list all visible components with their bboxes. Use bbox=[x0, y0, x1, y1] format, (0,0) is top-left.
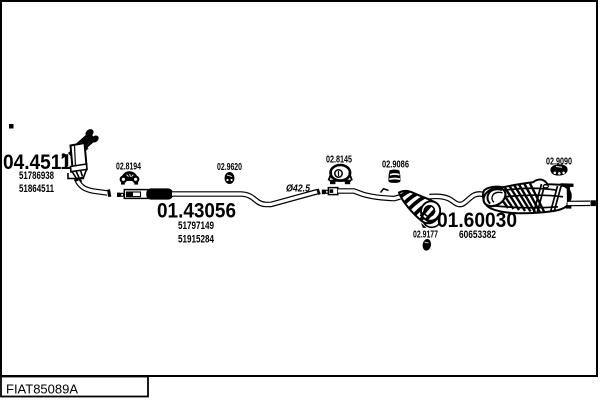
svg-text:02.8194: 02.8194 bbox=[116, 161, 141, 173]
svg-text:51786938: 51786938 bbox=[19, 170, 54, 182]
svg-text:02.9086: 02.9086 bbox=[382, 159, 409, 171]
svg-text:51797149: 51797149 bbox=[178, 220, 214, 232]
svg-text:60653382: 60653382 bbox=[459, 229, 496, 241]
svg-text:02.9177: 02.9177 bbox=[413, 229, 438, 241]
svg-text:51864511: 51864511 bbox=[19, 183, 54, 195]
svg-text:02.8145: 02.8145 bbox=[326, 154, 352, 166]
svg-text:02.9620: 02.9620 bbox=[217, 161, 242, 173]
svg-text:51915284: 51915284 bbox=[178, 234, 215, 246]
svg-text:FIAT85089A: FIAT85089A bbox=[6, 382, 78, 397]
